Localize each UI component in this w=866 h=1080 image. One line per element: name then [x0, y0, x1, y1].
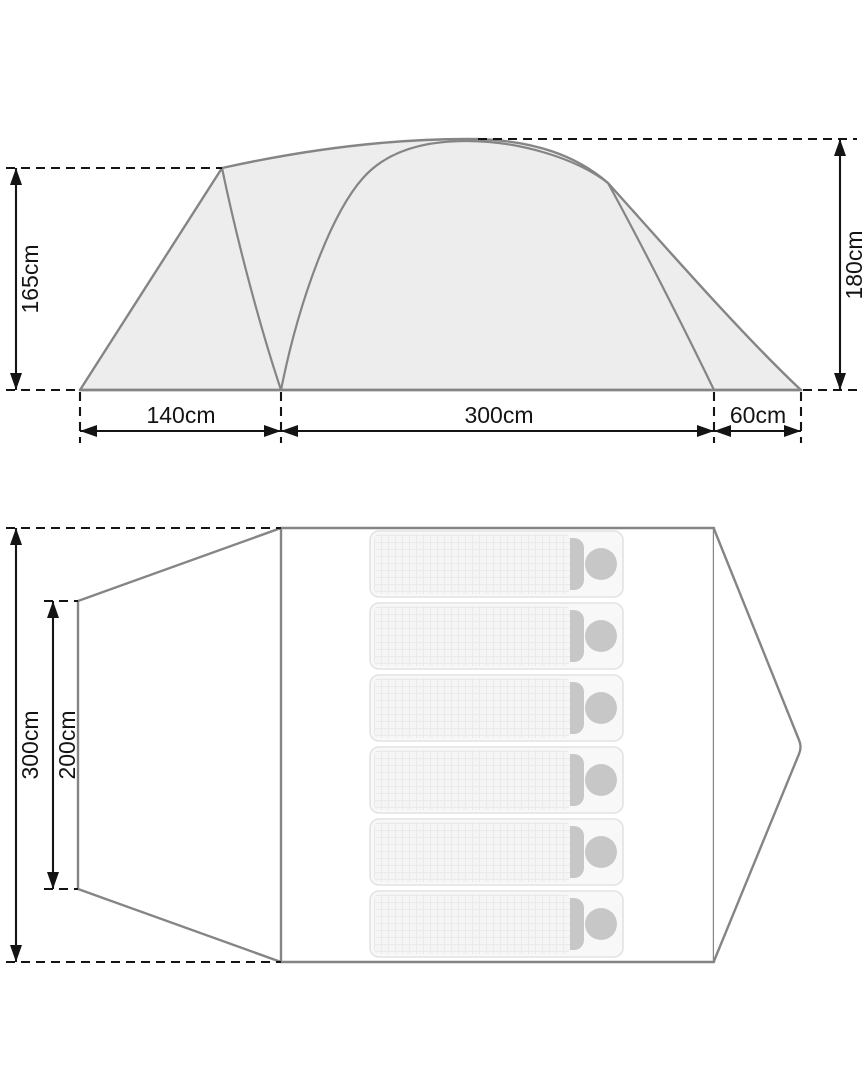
sleeping-pad: [370, 675, 623, 741]
side-elevation-view: 165cm 180cm 140cm 300cm 60cm: [6, 139, 866, 443]
label-width-porch: 140cm: [146, 402, 215, 428]
sleeping-pad: [370, 819, 623, 885]
tent-dimension-diagram: 165cm 180cm 140cm 300cm 60cm: [0, 0, 866, 1080]
sleeping-pad: [370, 603, 623, 669]
sleeping-pad: [370, 531, 623, 597]
sleeping-pad: [370, 891, 623, 957]
label-width-rear: 60cm: [730, 402, 786, 428]
label-height-right: 180cm: [841, 230, 866, 299]
rear-point-outline: [714, 529, 801, 961]
dimension-widths: 140cm 300cm 60cm: [80, 392, 801, 443]
floor-plan-view: 300cm 200cm: [6, 528, 801, 962]
tent-silhouette: [80, 139, 801, 390]
sleeping-pad: [370, 747, 623, 813]
label-length-total: 300cm: [17, 710, 43, 779]
label-width-main: 300cm: [464, 402, 533, 428]
diagram-canvas: 165cm 180cm 140cm 300cm 60cm: [0, 0, 866, 1080]
dimension-length-200: 200cm: [44, 601, 80, 889]
label-length-inner: 200cm: [54, 710, 80, 779]
label-height-left: 165cm: [17, 244, 43, 313]
porch-outline: [78, 528, 281, 962]
